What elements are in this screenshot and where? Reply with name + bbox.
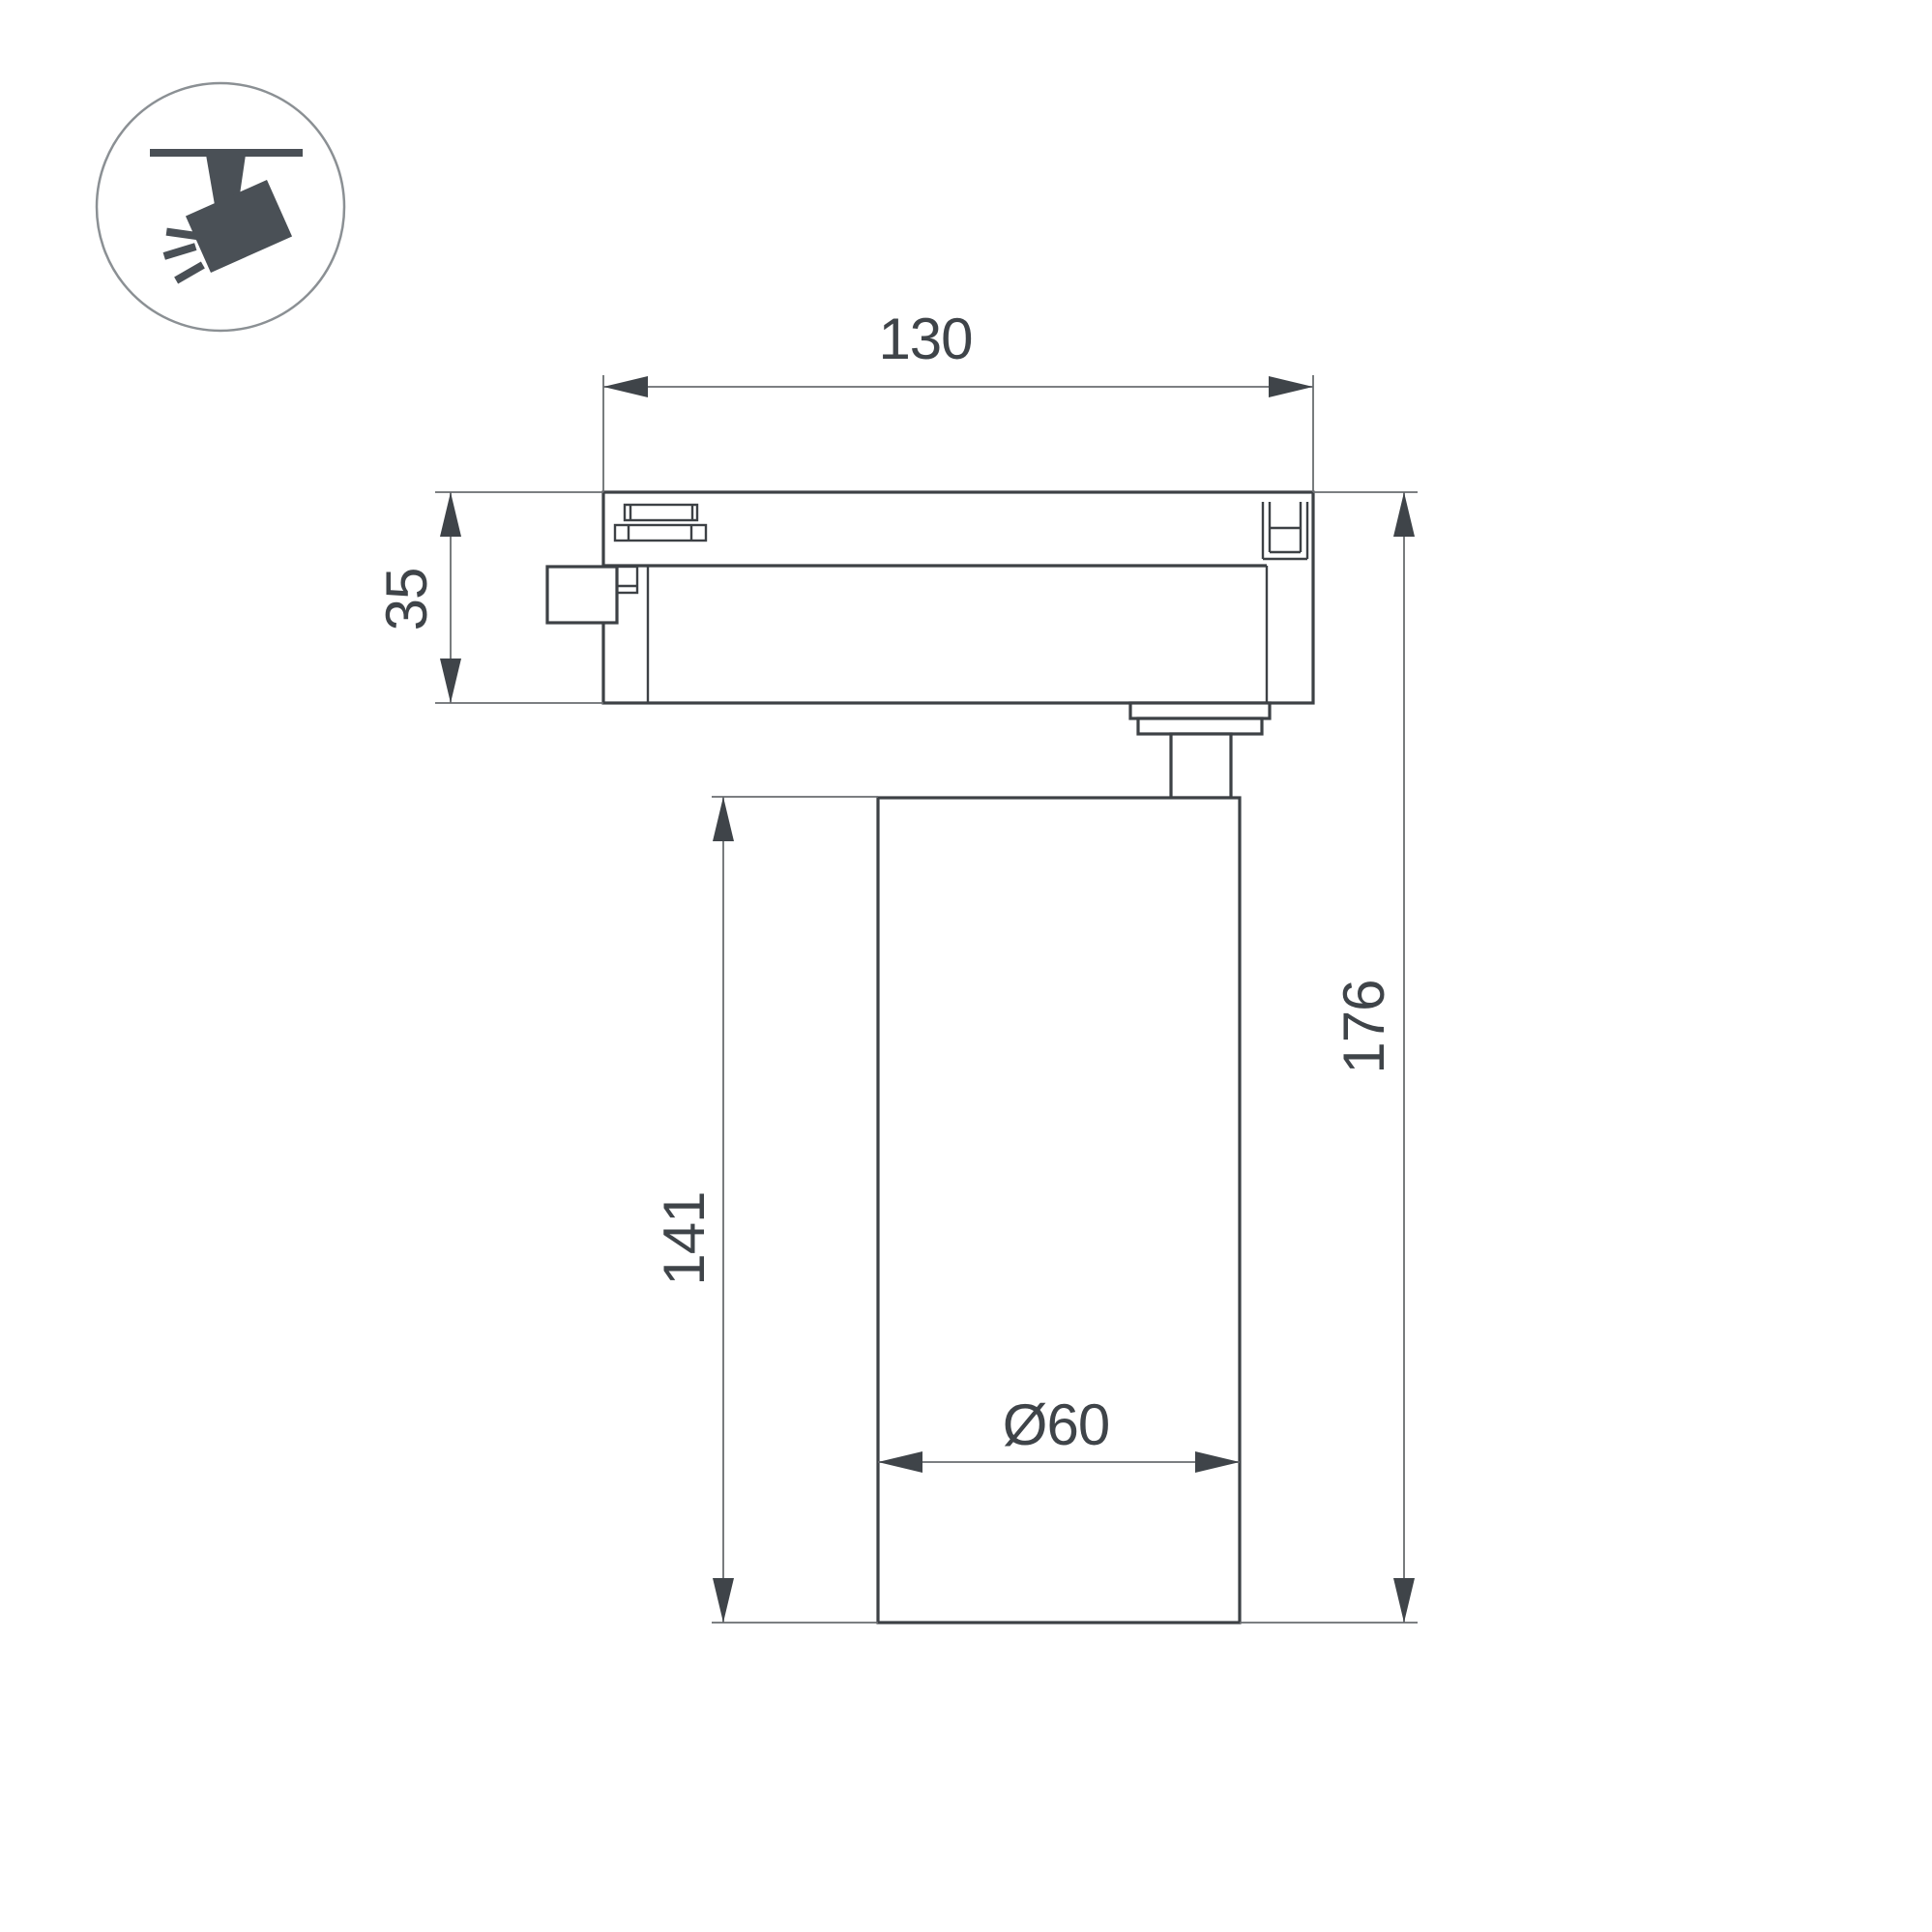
dim141-arrow-bottom bbox=[713, 1578, 734, 1623]
dim-adapter-width-130: 130 bbox=[603, 307, 1313, 492]
dim176-arrow-bottom bbox=[1393, 1578, 1415, 1623]
dim176-label: 176 bbox=[1332, 980, 1396, 1073]
adapter-lock-tab bbox=[547, 567, 617, 623]
dim130-arrow-right bbox=[1269, 376, 1313, 397]
dim-body-height-141: 141 bbox=[652, 797, 878, 1623]
dim35-label: 35 bbox=[374, 569, 439, 631]
dim35-arrow-bottom bbox=[440, 659, 461, 703]
dim141-label: 141 bbox=[652, 1191, 717, 1285]
drawing-canvas: 130 35 141 176 Ø60 bbox=[0, 0, 1932, 1932]
dim130-arrow-left bbox=[603, 376, 648, 397]
dim60-label: Ø60 bbox=[1003, 1392, 1109, 1457]
dim176-arrow-top bbox=[1393, 492, 1415, 537]
dim141-arrow-top bbox=[713, 797, 734, 841]
dim130-label: 130 bbox=[878, 307, 972, 371]
dim35-arrow-top bbox=[440, 492, 461, 537]
track-spotlight-icon bbox=[97, 83, 344, 331]
dimension-drawing-svg: 130 35 141 176 Ø60 bbox=[0, 0, 1932, 1932]
joint-stem bbox=[1171, 734, 1231, 798]
joint-flange-upper bbox=[1130, 703, 1270, 718]
joint-flange-lower bbox=[1138, 718, 1262, 734]
lamp-body-outline bbox=[878, 798, 1240, 1623]
track-adapter-outline bbox=[603, 492, 1313, 703]
